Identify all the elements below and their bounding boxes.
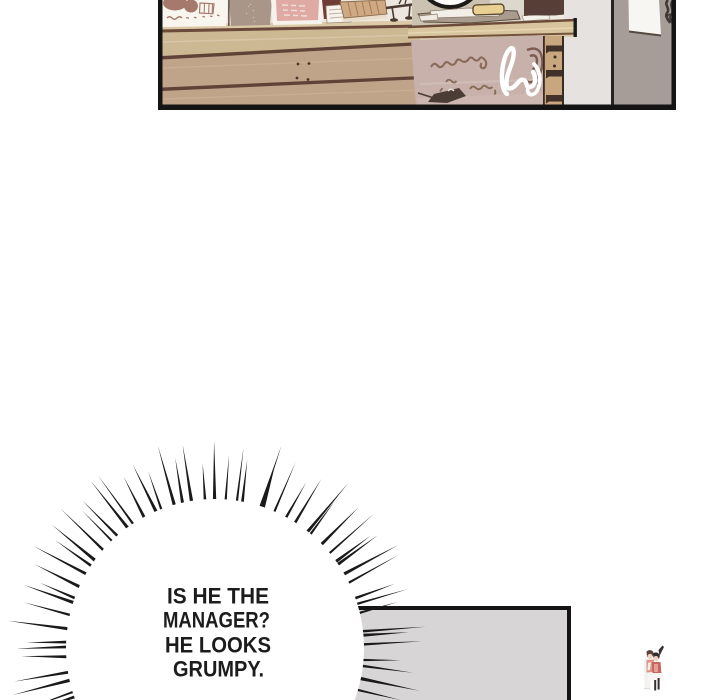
svg-text:HE LOOKS: HE LOOKS (165, 633, 271, 658)
svg-text:MANAGER?: MANAGER? (163, 608, 270, 633)
svg-text:IS HE THE: IS HE THE (167, 584, 269, 609)
svg-text:GRUMPY.: GRUMPY. (173, 657, 264, 682)
